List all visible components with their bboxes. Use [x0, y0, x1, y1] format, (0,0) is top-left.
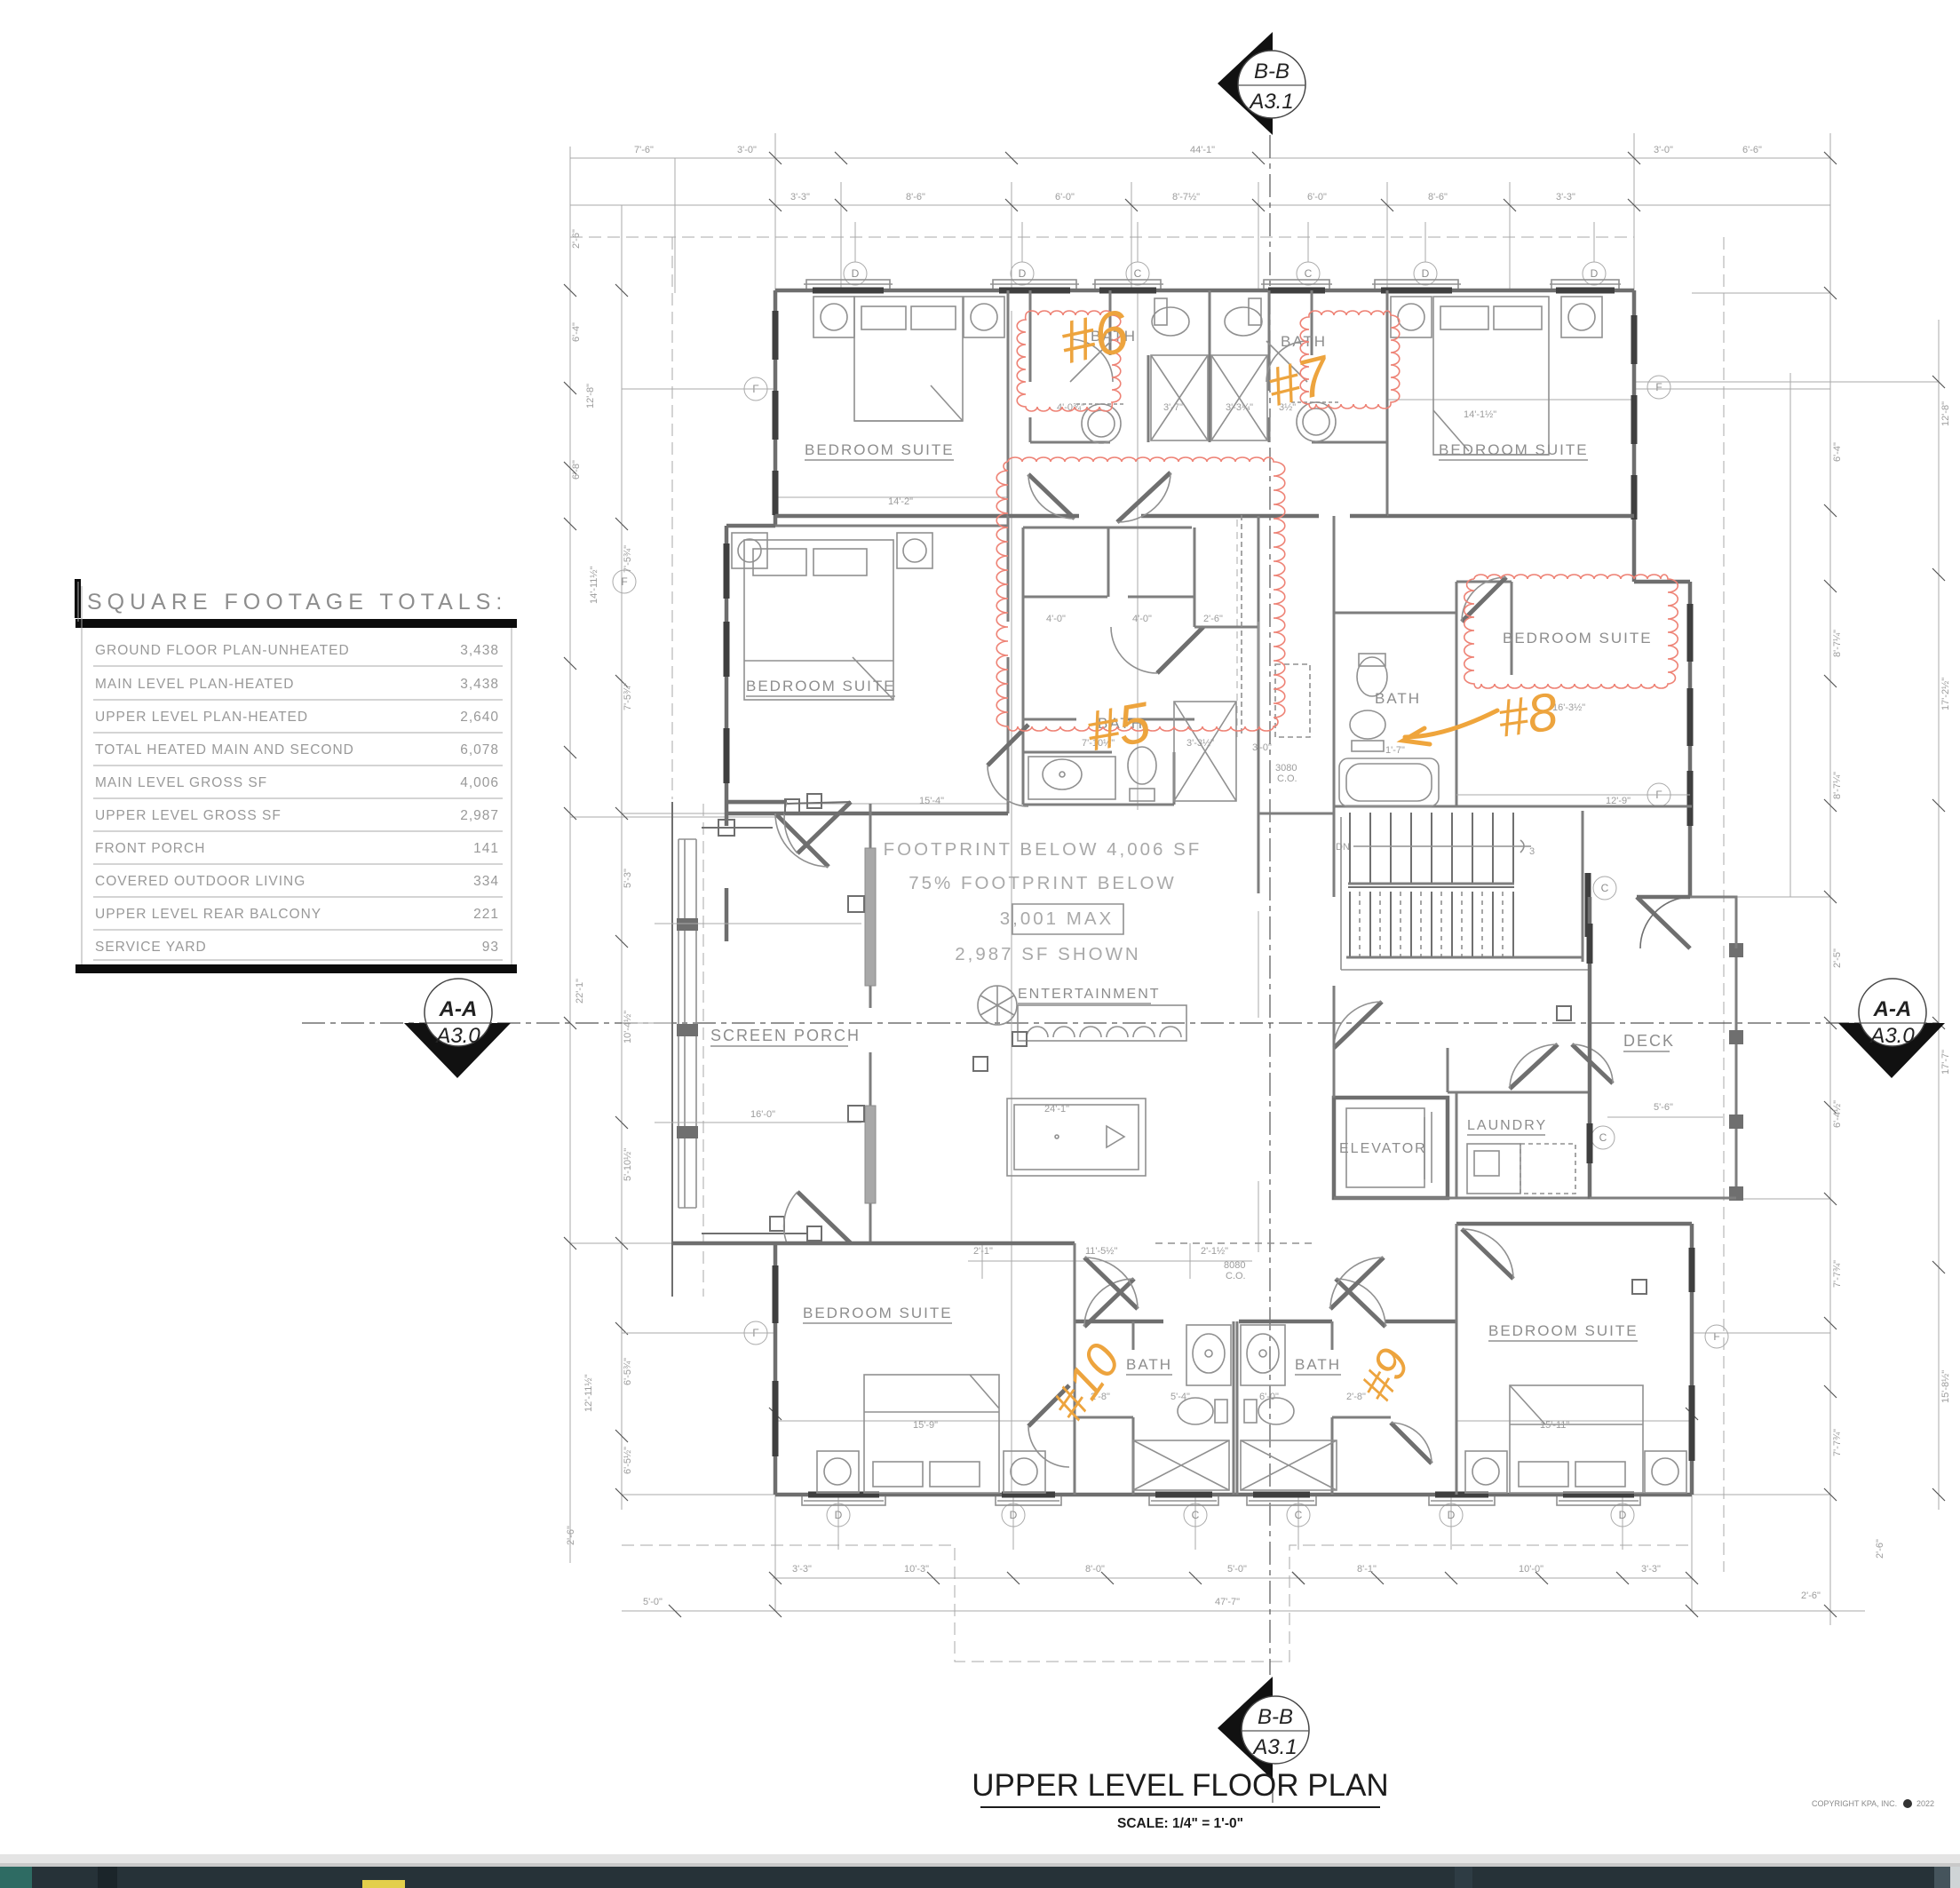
svg-text:24'-1": 24'-1" — [1044, 1104, 1069, 1115]
svg-text:8'-7½": 8'-7½" — [1172, 192, 1200, 202]
svg-text:15'-8½": 15'-8½" — [1940, 1370, 1951, 1403]
svg-text:2,987 SF SHOWN: 2,987 SF SHOWN — [955, 944, 1140, 964]
svg-text:2,640: 2,640 — [460, 710, 499, 725]
svg-text:8'-6": 8'-6" — [1428, 192, 1448, 202]
svg-text:4,006: 4,006 — [460, 775, 499, 790]
svg-text:F: F — [621, 575, 627, 588]
svg-text:C: C — [1134, 267, 1142, 280]
svg-text:D: D — [1619, 1509, 1627, 1521]
svg-text:C: C — [1305, 267, 1313, 280]
svg-text:A3.1: A3.1 — [1251, 1735, 1297, 1759]
svg-text:3,438: 3,438 — [460, 677, 499, 692]
svg-text:334: 334 — [473, 874, 499, 889]
svg-text:D: D — [1010, 1509, 1018, 1521]
svg-text:F: F — [1655, 381, 1662, 393]
svg-text:3'-0": 3'-0" — [1654, 145, 1673, 155]
svg-text:SCREEN PORCH: SCREEN PORCH — [710, 1027, 861, 1044]
svg-text:COPYRIGHT KPA, INC.: COPYRIGHT KPA, INC. — [1812, 1799, 1897, 1808]
svg-text:141: 141 — [473, 841, 499, 856]
svg-text:7'-7¾": 7'-7¾" — [1832, 1429, 1843, 1456]
svg-text:B-B: B-B — [1258, 1705, 1293, 1729]
svg-text:3'-0": 3'-0" — [1252, 742, 1272, 753]
svg-text:2,987: 2,987 — [460, 808, 499, 823]
svg-text:3: 3 — [1529, 846, 1535, 857]
svg-text:C.O.: C.O. — [1226, 1271, 1246, 1281]
svg-text:15'-4": 15'-4" — [919, 796, 944, 806]
svg-text:8'-0": 8'-0" — [1085, 1564, 1105, 1575]
svg-text:B-B: B-B — [1254, 59, 1289, 83]
svg-text:8'-7¼": 8'-7¼" — [1832, 772, 1843, 799]
svg-text:8080: 8080 — [1224, 1260, 1245, 1271]
svg-text:D: D — [1422, 267, 1430, 280]
svg-text:5'-6": 5'-6" — [1654, 1102, 1673, 1113]
svg-text:2'-6": 2'-6" — [1801, 1591, 1821, 1601]
svg-text:BATH: BATH — [1375, 690, 1421, 707]
svg-text:5'-3": 5'-3" — [623, 869, 633, 888]
svg-text:6'-5½": 6'-5½" — [623, 1447, 633, 1474]
svg-text:2'-1": 2'-1" — [973, 1246, 993, 1257]
svg-text:BEDROOM SUITE: BEDROOM SUITE — [803, 1305, 953, 1321]
svg-text:5'-10½": 5'-10½" — [623, 1148, 633, 1181]
svg-text:6'-8": 6'-8" — [571, 460, 582, 480]
svg-text:MAIN LEVEL GROSS SF: MAIN LEVEL GROSS SF — [95, 775, 267, 790]
svg-text:BEDROOM SUITE: BEDROOM SUITE — [1503, 630, 1653, 647]
svg-text:12'-11½": 12'-11½" — [583, 1374, 594, 1412]
svg-text:6'-0": 6'-0" — [1307, 192, 1327, 202]
svg-text:17'-2½": 17'-2½" — [1940, 678, 1951, 710]
svg-text:14'-11½": 14'-11½" — [589, 566, 599, 604]
svg-text:2'-6": 2'-6" — [571, 229, 582, 249]
svg-text:221: 221 — [473, 907, 499, 922]
svg-text:93: 93 — [482, 940, 499, 955]
svg-text:12'-8": 12'-8" — [1940, 401, 1951, 426]
svg-text:3'-3": 3'-3" — [1641, 1564, 1661, 1575]
svg-text:10'-4½": 10'-4½" — [623, 1011, 633, 1043]
svg-text:22'-1": 22'-1" — [575, 979, 585, 1003]
svg-text:3'-3": 3'-3" — [790, 192, 810, 202]
svg-text:UPPER LEVEL FLOOR PLAN: UPPER LEVEL FLOOR PLAN — [972, 1768, 1388, 1803]
svg-text:A3.1: A3.1 — [1248, 90, 1293, 114]
svg-text:C.O.: C.O. — [1277, 773, 1297, 784]
svg-text:17'-7": 17'-7" — [1940, 1050, 1951, 1075]
svg-text:SQUARE FOOTAGE TOTALS:: SQUARE FOOTAGE TOTALS: — [87, 590, 507, 615]
svg-text:BATH: BATH — [1295, 1356, 1341, 1373]
svg-text:TOTAL HEATED MAIN AND SECOND: TOTAL HEATED MAIN AND SECOND — [95, 742, 354, 758]
svg-text:2022: 2022 — [1916, 1799, 1934, 1808]
svg-text:8'-1": 8'-1" — [1357, 1564, 1377, 1575]
svg-text:12'-9": 12'-9" — [1606, 796, 1631, 806]
svg-text:6'-5¾": 6'-5¾" — [623, 1358, 633, 1385]
svg-text:D: D — [852, 267, 860, 280]
svg-text:6,078: 6,078 — [460, 742, 499, 758]
svg-text:8'-6": 8'-6" — [906, 192, 925, 202]
svg-text:#5: #5 — [1082, 689, 1155, 763]
svg-text:C: C — [1599, 1131, 1607, 1144]
svg-text:LAUNDRY: LAUNDRY — [1467, 1118, 1547, 1133]
svg-text:7'-7¾": 7'-7¾" — [1832, 1260, 1843, 1288]
svg-text:11'-5½": 11'-5½" — [1085, 1246, 1117, 1257]
svg-text:3'-3½": 3'-3½" — [1186, 738, 1214, 749]
svg-text:2'-6": 2'-6" — [1875, 1539, 1885, 1559]
svg-text:F: F — [1713, 1330, 1719, 1343]
svg-text:6'-0": 6'-0" — [1259, 1392, 1279, 1402]
svg-text:2'-6": 2'-6" — [1203, 614, 1223, 624]
svg-text:UPPER LEVEL GROSS SF: UPPER LEVEL GROSS SF — [95, 808, 282, 823]
svg-text:GROUND FLOOR PLAN-UNHEATED: GROUND FLOOR PLAN-UNHEATED — [95, 643, 350, 658]
svg-text:C: C — [1601, 882, 1609, 894]
svg-text:ELEVATOR: ELEVATOR — [1339, 1141, 1427, 1156]
svg-text:D: D — [1019, 267, 1027, 280]
svg-text:2'-6": 2'-6" — [566, 1526, 576, 1545]
svg-text:4'-0": 4'-0" — [1046, 614, 1066, 624]
svg-text:BEDROOM SUITE: BEDROOM SUITE — [746, 678, 896, 694]
svg-text:3'-3": 3'-3" — [1556, 192, 1575, 202]
svg-text:8'-7¼": 8'-7¼" — [1832, 630, 1843, 657]
svg-text:DECK: DECK — [1623, 1032, 1675, 1050]
svg-text:D: D — [1591, 267, 1599, 280]
svg-text:14'-1½": 14'-1½" — [1464, 409, 1496, 420]
svg-text:BATH: BATH — [1126, 1356, 1172, 1373]
svg-text:47'-7": 47'-7" — [1215, 1597, 1240, 1607]
svg-text:3,001 MAX: 3,001 MAX — [1000, 908, 1114, 929]
svg-text:2'-5": 2'-5" — [1832, 948, 1843, 968]
svg-text:A3.0: A3.0 — [1869, 1024, 1915, 1048]
svg-text:5'-0": 5'-0" — [1227, 1564, 1247, 1575]
svg-text:5'-4": 5'-4" — [1170, 1392, 1190, 1402]
svg-text:6'-0": 6'-0" — [1055, 192, 1075, 202]
svg-text:A-A: A-A — [1873, 997, 1912, 1021]
svg-text:ENTERTAINMENT: ENTERTAINMENT — [1018, 987, 1161, 1002]
svg-text:16'-0": 16'-0" — [750, 1109, 775, 1120]
svg-text:44'-1": 44'-1" — [1190, 145, 1215, 155]
svg-text:FOOTPRINT BELOW 4,006 SF: FOOTPRINT BELOW 4,006 SF — [884, 839, 1202, 860]
svg-text:A3.0: A3.0 — [434, 1024, 480, 1048]
svg-text:COVERED OUTDOOR LIVING: COVERED OUTDOOR LIVING — [95, 874, 306, 889]
svg-text:UPPER LEVEL PLAN-HEATED: UPPER LEVEL PLAN-HEATED — [95, 710, 308, 725]
svg-text:DN: DN — [1336, 842, 1350, 853]
svg-text:7'-6": 7'-6" — [634, 145, 654, 155]
svg-text:1'-7": 1'-7" — [1385, 745, 1405, 756]
svg-text:A-A: A-A — [439, 997, 478, 1021]
svg-text:BEDROOM SUITE: BEDROOM SUITE — [1439, 441, 1589, 458]
svg-text:FRONT PORCH: FRONT PORCH — [95, 841, 205, 856]
svg-text:7'-5¾": 7'-5¾" — [623, 683, 633, 710]
svg-text:6'-6": 6'-6" — [1742, 145, 1762, 155]
svg-text:16'-3½": 16'-3½" — [1552, 702, 1585, 713]
svg-text:6'-4½": 6'-4½" — [1832, 1100, 1843, 1128]
svg-text:#8: #8 — [1494, 681, 1561, 749]
svg-text:14'-2": 14'-2" — [888, 496, 913, 507]
svg-text:3080: 3080 — [1275, 763, 1297, 773]
svg-text:6'-4": 6'-4" — [571, 322, 582, 342]
svg-text:15'-9": 15'-9" — [913, 1420, 938, 1431]
svg-text:#6: #6 — [1054, 297, 1134, 377]
svg-text:C: C — [1192, 1509, 1200, 1521]
svg-text:D: D — [1448, 1509, 1456, 1521]
svg-text:UPPER LEVEL REAR BALCONY: UPPER LEVEL REAR BALCONY — [95, 907, 321, 922]
svg-text:15'-11": 15'-11" — [1540, 1420, 1569, 1431]
svg-text:5'-0": 5'-0" — [643, 1597, 663, 1607]
svg-text:2'-1½": 2'-1½" — [1201, 1246, 1228, 1257]
svg-text:75% FOOTPRINT BELOW: 75% FOOTPRINT BELOW — [909, 873, 1177, 893]
svg-text:D: D — [835, 1509, 843, 1521]
svg-text:C: C — [1295, 1509, 1303, 1521]
svg-text:10'-0": 10'-0" — [1519, 1564, 1543, 1575]
svg-text:12'-8": 12'-8" — [585, 384, 596, 409]
svg-text:10'-3": 10'-3" — [904, 1564, 929, 1575]
svg-text:3'-0": 3'-0" — [737, 145, 757, 155]
svg-text:SERVICE YARD: SERVICE YARD — [95, 940, 207, 955]
svg-text:SCALE: 1/4" = 1'-0": SCALE: 1/4" = 1'-0" — [1117, 1816, 1243, 1831]
svg-text:BEDROOM SUITE: BEDROOM SUITE — [1488, 1322, 1639, 1339]
svg-text:4'-0": 4'-0" — [1132, 614, 1152, 624]
svg-text:3,438: 3,438 — [460, 643, 499, 658]
svg-text:6'-4": 6'-4" — [1832, 442, 1843, 462]
svg-text:7'-5¾": 7'-5¾" — [623, 545, 633, 573]
svg-text:3'-3¼": 3'-3¼" — [1226, 402, 1253, 413]
svg-text:2'-8": 2'-8" — [1346, 1392, 1366, 1402]
svg-text:BEDROOM SUITE: BEDROOM SUITE — [805, 441, 955, 458]
svg-text:3'-7": 3'-7" — [1163, 402, 1183, 413]
svg-text:3'-3": 3'-3" — [792, 1564, 812, 1575]
svg-text:MAIN LEVEL PLAN-HEATED: MAIN LEVEL PLAN-HEATED — [95, 677, 294, 692]
